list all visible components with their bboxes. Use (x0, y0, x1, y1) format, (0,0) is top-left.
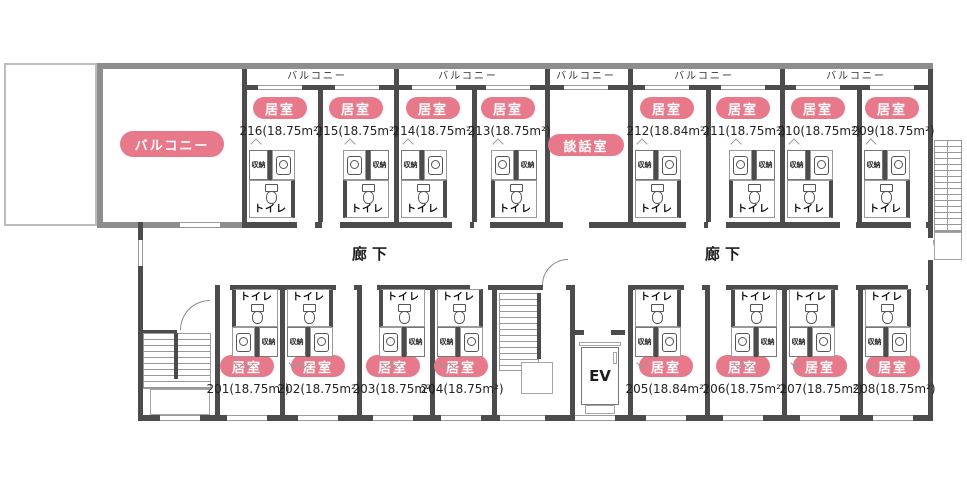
wall-segment (628, 69, 633, 85)
sanitary-unit: 収納 トイレ (729, 150, 775, 218)
wall-segment (430, 285, 435, 421)
closet-door-mark (492, 138, 503, 149)
wall-segment (545, 69, 550, 85)
storage-closet: 収納 (370, 150, 389, 180)
window-symbol (160, 415, 200, 421)
toilet-room: トイレ (437, 289, 483, 327)
room-number: 213(18.75m²) (467, 124, 550, 138)
balcony-label: バルコニー (556, 67, 616, 82)
wall-segment (394, 69, 399, 85)
balcony-wall (97, 63, 103, 228)
toilet-room: トイレ (379, 289, 425, 327)
room-badge: 居室 (639, 355, 693, 377)
door-opening (840, 222, 856, 228)
storage-closet: 収納 (635, 150, 654, 180)
toilet-icon (878, 184, 894, 204)
room-badge: 居室 (253, 97, 307, 119)
storage-closet: 収納 (787, 150, 806, 180)
storage-closet: 収納 (518, 150, 537, 180)
room-number: 209(18.75m²) (851, 124, 934, 138)
washbasin-icon (812, 327, 835, 357)
wall-segment (782, 285, 787, 421)
balcony-label: バルコニー (674, 67, 734, 82)
room-badge: 居室 (716, 97, 770, 119)
toilet-icon (301, 304, 317, 324)
room-number: 211(18.75m²) (702, 124, 785, 138)
storage-closet: 収納 (758, 327, 777, 357)
door-opening (452, 222, 470, 228)
sanitary-unit: 収納 トイレ (635, 150, 681, 218)
toilet-icon (396, 304, 412, 324)
room-badge: 居室 (406, 97, 460, 119)
wall-segment (780, 85, 785, 227)
washbasin-icon (887, 150, 910, 180)
wall-segment (705, 285, 710, 421)
corridor-label: 廊下 (705, 243, 745, 264)
room-badge: 居室 (329, 97, 383, 119)
wall-segment (628, 285, 633, 421)
wall-segment (570, 285, 575, 421)
balcony-label: バルコニー (438, 67, 498, 82)
toilet-room: トイレ (343, 180, 389, 218)
toilet-label: トイレ (737, 205, 770, 215)
storage-closet: 収納 (789, 327, 808, 357)
toilet-label: トイレ (792, 205, 825, 215)
room-number: 216(18.75m²) (239, 124, 322, 138)
room-number: 202(18.75m²) (277, 382, 360, 396)
stair-rail-line (947, 140, 948, 232)
floor-plan: バルコニー バルコニー バルコニー バルコニー バルコニー バルコニー 廊下 廊… (0, 0, 967, 486)
toilet-room: トイレ (635, 289, 681, 327)
storage-closet: 収納 (287, 327, 306, 357)
toilet-label: トイレ (640, 205, 673, 215)
room-number: 204(18.75m²) (420, 382, 503, 396)
room-badge: 居室 (481, 97, 535, 119)
sanitary-unit: 収納 トイレ (864, 150, 910, 218)
closet-door-mark (250, 138, 261, 149)
toilet-room: トイレ (731, 289, 777, 327)
stair-landing (521, 362, 553, 394)
window-symbol (373, 415, 413, 421)
wall-segment (357, 285, 362, 421)
toilet-icon (263, 184, 279, 204)
window-symbol (721, 85, 765, 90)
wall-segment (857, 85, 862, 227)
sanitary-unit: トイレ 収納 (731, 289, 777, 357)
corridor-label: 廊下 (352, 243, 392, 264)
door-opening (563, 222, 589, 228)
toilet-label: トイレ (739, 293, 772, 303)
window-symbol (180, 222, 220, 228)
toilet-icon (360, 184, 376, 204)
washbasin-icon (343, 150, 366, 180)
room-badge: 居室 (640, 97, 694, 119)
toilet-icon (249, 304, 265, 324)
wall-segment (242, 69, 247, 85)
toilet-icon (801, 184, 817, 204)
wall-segment (280, 285, 285, 421)
toilet-room: トイレ (401, 180, 447, 218)
room-badge: 居室 (793, 355, 847, 377)
sanitary-unit: トイレ 収納 (437, 289, 483, 357)
closet-door-mark (788, 138, 799, 149)
toilet-room: トイレ (287, 289, 333, 327)
window-symbol (412, 85, 456, 90)
window-symbol (298, 415, 338, 421)
storage-closet: 収納 (437, 327, 456, 357)
wall-segment (215, 285, 220, 421)
window-symbol (227, 415, 267, 421)
toilet-label: トイレ (442, 293, 475, 303)
storage-closet: 収納 (259, 327, 278, 357)
elevator-pit (585, 405, 615, 414)
storage-closet: 収納 (249, 150, 268, 180)
toilet-label: トイレ (794, 293, 827, 303)
balcony-label: バルコニー (826, 67, 886, 82)
closet-door-mark (344, 138, 355, 149)
closet-door-mark (402, 138, 413, 149)
window-symbol (138, 240, 143, 266)
room-badge: 居室 (865, 97, 919, 119)
washbasin-icon (379, 327, 402, 357)
balcony-wall (97, 222, 247, 228)
wall-segment (242, 85, 247, 227)
window-symbol (564, 85, 608, 90)
elevator-door-sill (579, 342, 621, 346)
toilet-label: トイレ (351, 205, 384, 215)
door-opening (838, 285, 856, 290)
toilet-room: トイレ (865, 289, 911, 327)
toilet-icon (649, 304, 665, 324)
door-swing-arc (180, 300, 210, 330)
washbasin-icon (731, 327, 754, 357)
sanitary-unit: 収納 トイレ (343, 150, 389, 218)
staircase-flight (934, 140, 962, 232)
toilet-icon (879, 304, 895, 324)
toilet-label: トイレ (240, 293, 273, 303)
washbasin-icon (310, 327, 333, 357)
room-number: 208(18.75m²) (852, 382, 935, 396)
window-symbol (873, 415, 913, 421)
room-badge: 居室 (716, 355, 770, 377)
washbasin-icon (424, 150, 447, 180)
balcony-wall (97, 63, 933, 69)
washbasin-icon (232, 327, 255, 357)
toilet-room: トイレ (249, 180, 295, 218)
toilet-icon (451, 304, 467, 324)
toilet-label: トイレ (499, 205, 532, 215)
toilet-icon (415, 184, 431, 204)
door-opening (297, 222, 315, 228)
sanitary-unit: トイレ 収納 (379, 289, 425, 357)
wall-segment (394, 85, 399, 227)
window-symbol (486, 85, 530, 90)
washbasin-icon (888, 327, 911, 357)
washbasin-icon (272, 150, 295, 180)
window-symbol (258, 85, 302, 90)
window-symbol (575, 415, 615, 421)
window-symbol (723, 415, 763, 421)
stair-rail-wall (174, 333, 178, 379)
window-symbol (500, 415, 545, 421)
window-symbol (796, 85, 840, 90)
window-symbol (800, 415, 840, 421)
toilet-label: トイレ (387, 293, 420, 303)
door-opening (686, 222, 704, 228)
room-number: 206(18.75m²) (702, 382, 785, 396)
room-badge: 居室 (291, 355, 345, 377)
toilet-label: トイレ (406, 205, 439, 215)
storage-closet: 収納 (635, 327, 654, 357)
storage-closet: 収納 (865, 327, 884, 357)
elevator-panel (613, 352, 617, 364)
sanitary-unit: トイレ 収納 (232, 289, 278, 357)
terrace-outline (4, 63, 97, 226)
window-symbol (870, 85, 914, 90)
storage-closet: 収納 (756, 150, 775, 180)
door-opening (336, 285, 354, 290)
storage-closet: 収納 (864, 150, 883, 180)
wall-segment (492, 285, 497, 421)
door-opening (708, 285, 726, 290)
balcony-badge: バルコニー (120, 131, 224, 157)
room-number: 215(18.75m²) (315, 124, 398, 138)
toilet-label: トイレ (254, 205, 287, 215)
window-symbol (646, 415, 686, 421)
sanitary-unit: トイレ 収納 (789, 289, 835, 357)
wall-segment (628, 85, 633, 227)
door-swing-arc (542, 259, 568, 285)
balcony-label: バルコニー (287, 67, 347, 82)
sanitary-unit: トイレ 収納 (635, 289, 681, 357)
sanitary-unit: トイレ 収納 (865, 289, 911, 357)
toilet-icon (803, 304, 819, 324)
lounge-badge: 談話室 (548, 134, 624, 156)
toilet-icon (746, 184, 762, 204)
room-number: 205(18.84m²) (625, 382, 708, 396)
door-opening (543, 285, 566, 290)
wall-segment (780, 69, 785, 85)
toilet-label: トイレ (869, 205, 902, 215)
toilet-label: トイレ (640, 293, 673, 303)
stair-rail-wall (537, 293, 541, 359)
sanitary-unit: 収納 トイレ (787, 150, 833, 218)
wall-segment (318, 85, 323, 227)
room-number: 210(18.75m²) (777, 124, 860, 138)
window-symbol (441, 415, 481, 421)
wall-segment (545, 85, 550, 227)
washbasin-icon (491, 150, 514, 180)
closet-door-mark (636, 138, 647, 149)
window-symbol (645, 85, 689, 90)
washbasin-icon (810, 150, 833, 180)
door-opening (474, 222, 490, 228)
wall-segment (472, 85, 477, 227)
elevator-shaft-jamb (571, 330, 584, 335)
toilet-room: トイレ (729, 180, 775, 218)
washbasin-icon (729, 150, 752, 180)
sanitary-unit: 収納 トイレ (491, 150, 537, 218)
stair-landing (150, 389, 210, 415)
room-number: 207(18.75m²) (779, 382, 862, 396)
washbasin-icon (460, 327, 483, 357)
door-opening (684, 285, 702, 290)
toilet-icon (508, 184, 524, 204)
stair-landing (934, 232, 962, 260)
toilet-label: トイレ (870, 293, 903, 303)
toilet-room: トイレ (789, 289, 835, 327)
storage-closet: 収納 (401, 150, 420, 180)
closet-door-mark (865, 138, 876, 149)
wall-segment (858, 285, 863, 421)
room-number: 212(18.84m²) (626, 124, 709, 138)
toilet-room: トイレ (635, 180, 681, 218)
toilet-icon (748, 304, 764, 324)
toilet-icon (649, 184, 665, 204)
sanitary-unit: トイレ 収納 (287, 289, 333, 357)
washbasin-icon (658, 150, 681, 180)
toilet-room: トイレ (787, 180, 833, 218)
door-opening (322, 222, 340, 228)
sanitary-unit: 収納 トイレ (249, 150, 295, 218)
toilet-room: トイレ (864, 180, 910, 218)
toilet-room: トイレ (232, 289, 278, 327)
room-badge: 居室 (791, 97, 845, 119)
closet-door-mark (730, 138, 741, 149)
room-number: 214(18.75m²) (392, 124, 475, 138)
elevator-shaft-jamb (611, 330, 625, 335)
washbasin-icon (658, 327, 681, 357)
toilet-room: トイレ (491, 180, 537, 218)
sanitary-unit: 収納 トイレ (401, 150, 447, 218)
toilet-label: トイレ (292, 293, 325, 303)
staircase-flight (499, 293, 539, 371)
door-opening (911, 222, 926, 228)
door-opening (708, 222, 726, 228)
storage-closet: 収納 (406, 327, 425, 357)
wall-segment (706, 85, 711, 227)
window-symbol (335, 85, 379, 90)
